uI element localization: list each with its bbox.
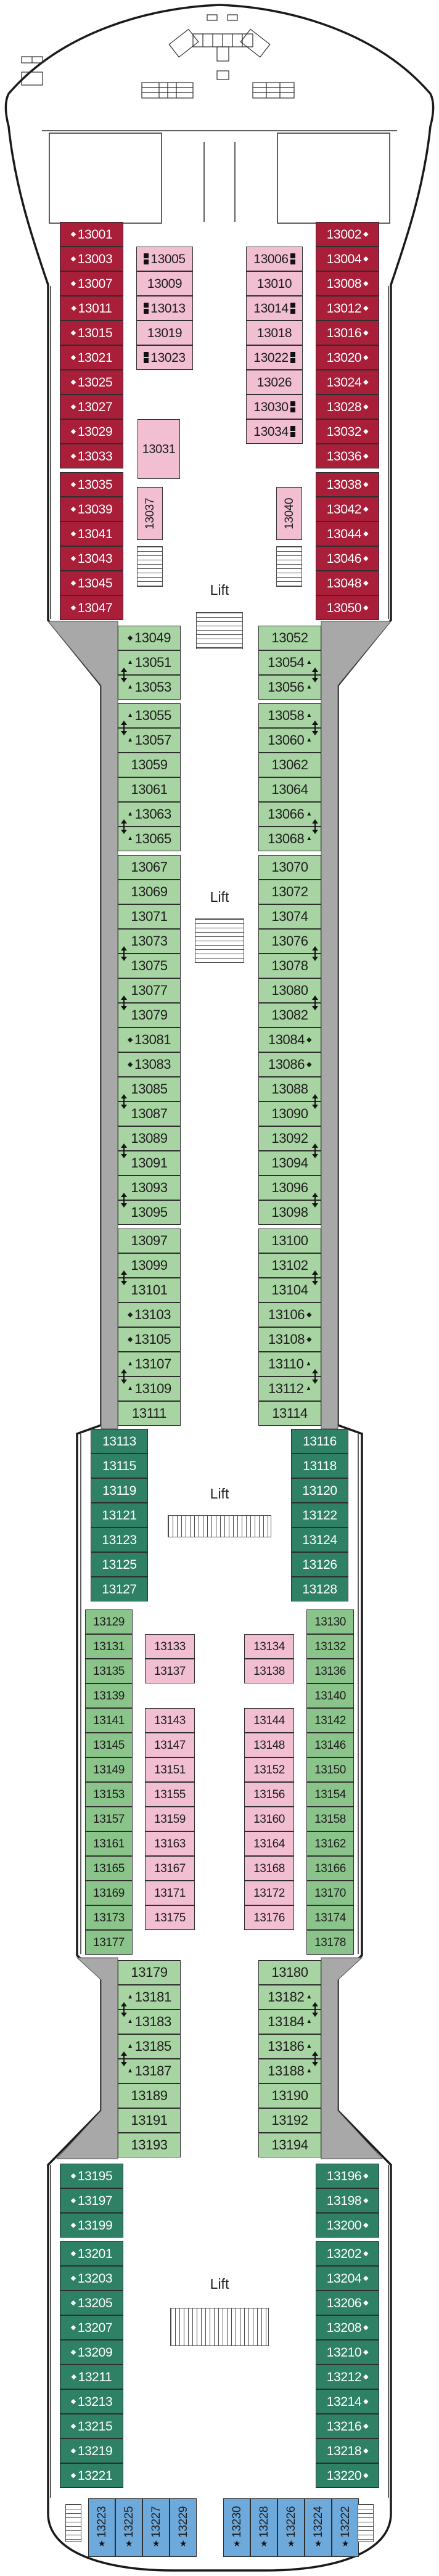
diamond-icon: ◆	[71, 2222, 76, 2229]
cabin-number: 13057	[135, 734, 171, 747]
cabin-13007[interactable]: ◆13007	[60, 271, 123, 296]
cabin-13225[interactable]: 13225★	[115, 2498, 142, 2557]
cabin-13033[interactable]: ◆13033	[60, 444, 123, 468]
cabin-number: 13091	[131, 1156, 167, 1170]
cabin-13016[interactable]: 13016◆	[316, 321, 379, 345]
star-icon: ★	[314, 2539, 322, 2548]
cabin-13170[interactable]: 13170	[306, 1881, 354, 1905]
diamond-icon: ◆	[71, 2198, 76, 2204]
diamond-icon: ◆	[363, 453, 368, 460]
cabin-13209[interactable]: ◆13209	[60, 2340, 123, 2365]
cabin-number: 13148	[253, 1740, 285, 1751]
triangle-icon: ▲	[306, 2019, 312, 2025]
cabin-number: 13036	[327, 450, 361, 463]
cabin-13146[interactable]: 13146	[306, 1733, 354, 1757]
cabin-13175[interactable]: 13175	[145, 1905, 195, 1930]
cabin-13210[interactable]: 13210◆	[316, 2340, 379, 2365]
cabin-13041[interactable]: ◆13041	[60, 521, 123, 546]
cabin-13103[interactable]: ◆13103	[118, 1302, 181, 1327]
cabin-13192[interactable]: 13192	[258, 2108, 321, 2133]
cabin-13124[interactable]: 13124	[291, 1527, 348, 1552]
cabin-number: 13006	[253, 253, 288, 266]
cabin-number: 13209	[78, 2346, 112, 2359]
diamond-icon: ◆	[363, 2423, 368, 2430]
cabin-13190[interactable]: 13190	[258, 2083, 321, 2108]
cabin-number: 13021	[78, 351, 112, 364]
cabin-13028[interactable]: 13028◆	[316, 395, 379, 419]
cabin-13148[interactable]: 13148	[244, 1733, 294, 1757]
cabin-number: 13141	[93, 1715, 125, 1727]
cabin-13126[interactable]: 13126	[291, 1552, 348, 1577]
cabin-13207[interactable]: ◆13207	[60, 2315, 123, 2340]
diamond-icon: ◆	[363, 481, 368, 488]
triangle-icon: ▲	[306, 836, 312, 842]
cabin-13135[interactable]: 13135	[85, 1659, 133, 1683]
cabin-13129[interactable]: 13129	[85, 1609, 133, 1634]
cabin-13064[interactable]: 13064	[258, 777, 321, 802]
cabin-13086[interactable]: 13086◆	[258, 1052, 321, 1077]
cabin-number: 13076	[271, 934, 308, 948]
connecting-door-icon	[120, 721, 128, 735]
cabin-number: 13218	[327, 2445, 361, 2458]
cabin-13226[interactable]: 13226★	[277, 2498, 305, 2557]
cabin-13070[interactable]: 13070	[258, 855, 321, 880]
cabin-13036[interactable]: 13036◆	[316, 444, 379, 468]
cabin-13152[interactable]: 13152	[244, 1757, 294, 1782]
cabin-13201[interactable]: ◆13201	[60, 2241, 123, 2266]
stairs	[276, 546, 302, 587]
cabin-13045[interactable]: ◆13045	[60, 571, 123, 595]
cabin-13030[interactable]: 13030	[246, 395, 303, 419]
cabin-13039[interactable]: ◆13039	[60, 497, 123, 521]
cabin-13081[interactable]: ◆13081	[118, 1028, 181, 1052]
cabin-13046[interactable]: 13046◆	[316, 546, 379, 571]
cabin-number: 13189	[131, 2089, 167, 2103]
diamond-icon: ◆	[363, 580, 368, 587]
cabin-13227[interactable]: 13227★	[142, 2498, 170, 2557]
cabin-13120[interactable]: 13120	[291, 1478, 348, 1503]
cabin-number: 13012	[327, 302, 361, 315]
cabin-number: 13079	[131, 1008, 167, 1022]
cabin-number: 13127	[102, 1583, 136, 1596]
cabin-13197[interactable]: ◆13197	[60, 2188, 123, 2213]
cabin-13001[interactable]: ◆13001	[60, 222, 123, 247]
diamond-icon: ◆	[71, 2349, 76, 2356]
cabin-number: 13122	[302, 1509, 337, 1522]
cabin-13196[interactable]: 13196◆	[316, 2164, 379, 2188]
cabin-13022[interactable]: 13022	[246, 345, 303, 370]
cabin-13194[interactable]: 13194	[258, 2133, 321, 2157]
cabin-number: 13158	[314, 1813, 346, 1825]
cabin-13168[interactable]: 13168	[244, 1856, 294, 1881]
cabin-13010[interactable]: 13010	[246, 271, 303, 296]
cabin-13116[interactable]: 13116	[291, 1429, 348, 1454]
cabin-number: 13169	[93, 1887, 125, 1899]
diamond-icon: ◆	[71, 2275, 76, 2282]
cabin-13084[interactable]: 13084◆	[258, 1028, 321, 1052]
diamond-icon: ◆	[363, 555, 368, 562]
cabin-13149[interactable]: 13149	[85, 1757, 133, 1782]
cabin-number: 13089	[131, 1132, 167, 1145]
triangle-icon: ▲	[306, 713, 312, 719]
cabin-13211[interactable]: ◆13211	[60, 2365, 123, 2389]
cabin-number: 13118	[303, 1460, 337, 1473]
cabin-13138[interactable]: 13138	[244, 1659, 294, 1683]
cabin-number: 13120	[302, 1484, 337, 1497]
cabin-number: 13226	[285, 2506, 297, 2538]
cabin-13215[interactable]: ◆13215	[60, 2414, 123, 2439]
cabin-13214[interactable]: 13214◆	[316, 2389, 379, 2414]
cabin-13121[interactable]: 13121	[91, 1503, 148, 1527]
cabin-number: 13162	[314, 1838, 346, 1850]
cabin-13195[interactable]: ◆13195	[60, 2164, 123, 2188]
cabin-13049[interactable]: ◆13049	[118, 626, 181, 650]
cabin-number: 13051	[135, 656, 171, 669]
cabin-13123[interactable]: 13123	[91, 1527, 148, 1552]
cabin-number: 13135	[93, 1666, 125, 1677]
diamond-icon: ◆	[363, 330, 368, 337]
cabin-13125[interactable]: 13125	[91, 1552, 148, 1577]
cabin-number: 13052	[271, 631, 308, 645]
connecting-door-icon	[311, 1143, 319, 1158]
cabin-13189[interactable]: 13189	[118, 2083, 181, 2108]
cabin-number: 13130	[314, 1616, 346, 1628]
cabin-number: 13033	[78, 450, 112, 463]
cabin-13061[interactable]: 13061	[118, 777, 181, 802]
cabin-13216[interactable]: 13216◆	[316, 2414, 379, 2439]
cabin-13165[interactable]: 13165	[85, 1856, 133, 1881]
cabin-13147[interactable]: 13147	[145, 1733, 195, 1757]
cabin-13202[interactable]: 13202◆	[316, 2241, 379, 2266]
cabin-number: 13031	[142, 443, 176, 456]
triangle-icon: ▲	[306, 737, 312, 743]
cabin-13012[interactable]: 13012◆	[316, 296, 379, 321]
diamond-icon: ◆	[128, 1336, 133, 1343]
cabin-number: 13114	[272, 1407, 308, 1420]
cabin-13229[interactable]: 13229★	[170, 2498, 197, 2557]
cabin-13113[interactable]: 13113	[91, 1429, 148, 1454]
cabin-number: 13113	[102, 1435, 136, 1448]
cabin-13228[interactable]: 13228★	[250, 2498, 277, 2557]
cabin-13106[interactable]: 13106◆	[258, 1302, 321, 1327]
cabin-13167[interactable]: 13167	[145, 1856, 195, 1881]
cabin-13029[interactable]: ◆13029	[60, 419, 123, 444]
triangle-icon: ▲	[127, 811, 133, 817]
cabin-number: 13116	[303, 1435, 337, 1448]
cabin-number: 13199	[78, 2219, 112, 2232]
cabin-number: 13173	[93, 1912, 125, 1924]
cabin-13035[interactable]: ◆13035	[60, 472, 123, 497]
cabin-13204[interactable]: 13204◆	[316, 2266, 379, 2291]
cabin-13213[interactable]: ◆13213	[60, 2389, 123, 2414]
cabin-13155[interactable]: 13155	[145, 1782, 195, 1807]
connecting-door-icon	[120, 1270, 128, 1285]
cabin-13027[interactable]: ◆13027	[60, 395, 123, 419]
cabin-13221[interactable]: ◆13221	[60, 2463, 123, 2488]
cabin-number: 13208	[327, 2321, 361, 2334]
diamond-icon: ◆	[71, 453, 76, 460]
connecting-door-icon	[311, 2051, 319, 2066]
cabin-13043[interactable]: ◆13043	[60, 546, 123, 571]
cabin-13156[interactable]: 13156	[244, 1782, 294, 1807]
connecting-door-icon	[311, 996, 319, 1010]
cabin-number: 13228	[258, 2506, 270, 2538]
cabin-number: 13157	[93, 1813, 125, 1825]
cabin-13220[interactable]: 13220◆	[316, 2463, 379, 2488]
cabin-13018[interactable]: 13018	[246, 321, 303, 345]
cabin-13009[interactable]: 13009	[136, 271, 193, 296]
cabin-13150[interactable]: 13150	[306, 1757, 354, 1782]
cabin-13006[interactable]: 13006	[246, 247, 303, 271]
cabin-13133[interactable]: 13133	[145, 1634, 195, 1659]
cabin-13140[interactable]: 13140	[306, 1683, 354, 1708]
cabin-number: 13056	[268, 681, 304, 694]
cabin-number: 13044	[327, 528, 361, 541]
cabin-13161[interactable]: 13161	[85, 1831, 133, 1856]
cabin-number: 13206	[327, 2297, 361, 2310]
cabin-13037[interactable]: 13037	[137, 487, 163, 540]
cabin-number: 13163	[154, 1838, 186, 1850]
lift-label: Lift	[198, 2276, 241, 2292]
triangle-icon: ▲	[306, 684, 312, 690]
cabin-number: 13180	[271, 1966, 308, 1979]
cabin-13151[interactable]: 13151	[145, 1757, 195, 1782]
cabin-13021[interactable]: ◆13021	[60, 345, 123, 370]
cabin-13059[interactable]: 13059	[118, 753, 181, 777]
cabin-number: 13194	[271, 2138, 308, 2152]
cabin-number: 13019	[147, 327, 182, 340]
cabin-13171[interactable]: 13171	[145, 1881, 195, 1905]
cabin-number: 13178	[314, 1937, 346, 1948]
cabin-13176[interactable]: 13176	[244, 1905, 294, 1930]
cabin-number: 13121	[102, 1509, 136, 1522]
cabin-number: 13149	[93, 1764, 125, 1776]
cabin-13191[interactable]: 13191	[118, 2108, 181, 2133]
cabin-number: 13105	[134, 1333, 171, 1346]
cabin-13131[interactable]: 13131	[85, 1634, 133, 1659]
star-icon: ★	[260, 2539, 268, 2548]
cabin-number: 13064	[271, 783, 308, 796]
cabin-13174[interactable]: 13174	[306, 1905, 354, 1930]
cabin-13025[interactable]: ◆13025	[60, 370, 123, 395]
cabin-13158[interactable]: 13158	[306, 1807, 354, 1831]
cabin-number: 13182	[268, 1990, 304, 2004]
diamond-icon: ◆	[363, 2198, 368, 2204]
cabin-13206[interactable]: 13206◆	[316, 2291, 379, 2315]
cabin-13143[interactable]: 13143	[145, 1708, 195, 1733]
cabin-13177[interactable]: 13177	[85, 1930, 133, 1955]
cabin-number: 13047	[78, 602, 112, 615]
diamond-icon: ◆	[71, 354, 76, 361]
cabin-13014[interactable]: 13014	[246, 296, 303, 321]
cabin-13115[interactable]: 13115	[91, 1454, 148, 1478]
cabin-number: 13041	[78, 528, 112, 541]
cabin-13172[interactable]: 13172	[244, 1881, 294, 1905]
cabin-number: 13045	[78, 577, 112, 590]
cabin-number: 13176	[253, 1912, 285, 1924]
cabin-13111[interactable]: 13111	[118, 1401, 181, 1426]
cabin-number: 13007	[78, 277, 112, 290]
connecting-door-icon	[120, 996, 128, 1010]
connecting-door-icon	[311, 1270, 319, 1285]
cabin-13002[interactable]: 13002◆	[316, 222, 379, 247]
cabin-13004[interactable]: 13004◆	[316, 247, 379, 271]
cabin-13179[interactable]: 13179	[118, 1960, 181, 1985]
cabin-number: 13016	[327, 327, 361, 340]
cabin-13074[interactable]: 13074	[258, 904, 321, 929]
cabin-13108[interactable]: 13108◆	[258, 1327, 321, 1352]
cabin-13020[interactable]: 13020◆	[316, 345, 379, 370]
cabin-13128[interactable]: 13128	[291, 1577, 348, 1601]
cabin-13118[interactable]: 13118	[291, 1454, 348, 1478]
connecting-door-icon	[311, 946, 319, 961]
cabin-13178[interactable]: 13178	[306, 1930, 354, 1955]
cabin-13200[interactable]: 13200◆	[316, 2213, 379, 2238]
cabin-13024[interactable]: 13024◆	[316, 370, 379, 395]
diamond-icon: ◆	[71, 379, 76, 386]
cabin-13003[interactable]: ◆13003	[60, 247, 123, 271]
cabin-13069[interactable]: 13069	[118, 880, 181, 904]
cabin-13114[interactable]: 13114	[258, 1401, 321, 1426]
cabin-13199[interactable]: ◆13199	[60, 2213, 123, 2238]
connecting-door-icon	[311, 1193, 319, 1208]
cabin-number: 13107	[135, 1357, 171, 1371]
diamond-icon: ◆	[306, 1037, 311, 1044]
connecting-door-icon	[120, 2002, 128, 2017]
cabin-13040[interactable]: 13040	[276, 487, 302, 540]
cabin-13127[interactable]: 13127	[91, 1577, 148, 1601]
cabin-13005[interactable]: 13005	[136, 247, 193, 271]
cabin-13026[interactable]: 13026	[246, 370, 303, 395]
cabin-13013[interactable]: 13013	[136, 296, 193, 321]
cabin-number: 13207	[78, 2321, 112, 2334]
cabin-13219[interactable]: ◆13219	[60, 2439, 123, 2463]
triangle-icon: ▲	[127, 1386, 133, 1392]
connecting-door-icon	[120, 1193, 128, 1208]
cabin-13011[interactable]: ◆13011	[60, 296, 123, 321]
cabin-13169[interactable]: 13169	[85, 1881, 133, 1905]
cabin-13023[interactable]: 13023	[136, 345, 193, 370]
cabin-13154[interactable]: 13154	[306, 1782, 354, 1807]
cabin-number: 13066	[268, 808, 304, 821]
cabin-13130[interactable]: 13130	[306, 1609, 354, 1634]
cabin-13224[interactable]: 13224★	[305, 2498, 332, 2557]
cabin-13164[interactable]: 13164	[244, 1831, 294, 1856]
cabin-13008[interactable]: 13008◆	[316, 271, 379, 296]
triangle-icon: ▲	[306, 1386, 312, 1392]
cabin-13132[interactable]: 13132	[306, 1634, 354, 1659]
cabin-number: 13068	[268, 832, 304, 846]
cabin-13097[interactable]: 13097	[118, 1229, 181, 1253]
cabin-number: 13090	[271, 1107, 308, 1121]
cabin-13047[interactable]: ◆13047	[60, 595, 123, 620]
cabin-13105[interactable]: ◆13105	[118, 1327, 181, 1352]
cabin-13072[interactable]: 13072	[258, 880, 321, 904]
cabin-13212[interactable]: 13212◆	[316, 2365, 379, 2389]
cabin-13048[interactable]: 13048◆	[316, 571, 379, 595]
diamond-icon: ◆	[71, 256, 76, 263]
cabin-13157[interactable]: 13157	[85, 1807, 133, 1831]
cabin-13198[interactable]: 13198◆	[316, 2188, 379, 2213]
cabin-13050[interactable]: 13050◆	[316, 595, 379, 620]
cabin-number: 13154	[314, 1789, 346, 1801]
cabin-13136[interactable]: 13136	[306, 1659, 354, 1683]
cabin-13173[interactable]: 13173	[85, 1905, 133, 1930]
cabin-13142[interactable]: 13142	[306, 1708, 354, 1733]
cabin-13159[interactable]: 13159	[145, 1807, 195, 1831]
cabin-13019[interactable]: 13019	[136, 321, 193, 345]
cabin-13145[interactable]: 13145	[85, 1733, 133, 1757]
cabin-13222[interactable]: 13222★	[332, 2498, 359, 2557]
cabin-number: 13072	[271, 885, 308, 899]
cabin-13230[interactable]: 13230★	[223, 2498, 250, 2557]
cabin-13062[interactable]: 13062	[258, 753, 321, 777]
cabin-13166[interactable]: 13166	[306, 1856, 354, 1881]
cabin-number: 13171	[154, 1887, 186, 1899]
connecting-door-icon	[120, 946, 128, 961]
cabin-number: 13093	[131, 1181, 167, 1195]
cabin-13032[interactable]: 13032◆	[316, 419, 379, 444]
cabin-number: 13119	[102, 1484, 136, 1497]
star-icon: ★	[98, 2539, 105, 2548]
cabin-13162[interactable]: 13162	[306, 1831, 354, 1856]
cabin-13134[interactable]: 13134	[244, 1634, 294, 1659]
triangle-icon: ▲	[127, 2068, 133, 2074]
cabin-13153[interactable]: 13153	[85, 1782, 133, 1807]
cabin-13180[interactable]: 13180	[258, 1960, 321, 1985]
cabin-13038[interactable]: 13038◆	[316, 472, 379, 497]
cabin-13160[interactable]: 13160	[244, 1807, 294, 1831]
cabin-number: 13050	[327, 602, 361, 615]
cabin-13083[interactable]: ◆13083	[118, 1052, 181, 1077]
cabin-number: 13174	[314, 1912, 346, 1924]
cabin-number: 13131	[93, 1641, 125, 1653]
bunk-beds-icon	[290, 253, 295, 264]
connecting-door-icon	[120, 1369, 128, 1384]
cabin-number: 13038	[327, 478, 361, 491]
cabin-number: 13073	[131, 934, 167, 948]
cabin-13122[interactable]: 13122	[291, 1503, 348, 1527]
cabin-13052[interactable]: 13052	[258, 626, 321, 650]
cabin-13137[interactable]: 13137	[145, 1659, 195, 1683]
cabin-13223[interactable]: 13223★	[88, 2498, 115, 2557]
cabin-13208[interactable]: 13208◆	[316, 2315, 379, 2340]
cabin-13203[interactable]: ◆13203	[60, 2266, 123, 2291]
cabin-13034[interactable]: 13034	[246, 419, 303, 444]
cabin-13144[interactable]: 13144	[244, 1708, 294, 1733]
cabin-number: 13085	[131, 1082, 167, 1096]
cabin-13042[interactable]: 13042◆	[316, 497, 379, 521]
cabin-13141[interactable]: 13141	[85, 1708, 133, 1733]
cabin-13163[interactable]: 13163	[145, 1831, 195, 1856]
cabin-number: 13140	[314, 1690, 346, 1702]
cabin-13205[interactable]: ◆13205	[60, 2291, 123, 2315]
cabin-13193[interactable]: 13193	[118, 2133, 181, 2157]
cabin-13119[interactable]: 13119	[91, 1478, 148, 1503]
cabin-13071[interactable]: 13071	[118, 904, 181, 929]
cabin-13218[interactable]: 13218◆	[316, 2439, 379, 2463]
cabin-number: 13219	[78, 2445, 112, 2458]
cabin-13139[interactable]: 13139	[85, 1683, 133, 1708]
cabin-13044[interactable]: 13044◆	[316, 521, 379, 546]
cabin-13100[interactable]: 13100	[258, 1229, 321, 1253]
cabin-13031[interactable]: 13031	[137, 419, 180, 479]
diamond-icon: ◆	[71, 330, 76, 337]
cabin-number: 13082	[271, 1008, 308, 1022]
cabin-13067[interactable]: 13067	[118, 855, 181, 880]
connecting-door-icon	[120, 2051, 128, 2066]
cabin-13015[interactable]: ◆13015	[60, 321, 123, 345]
